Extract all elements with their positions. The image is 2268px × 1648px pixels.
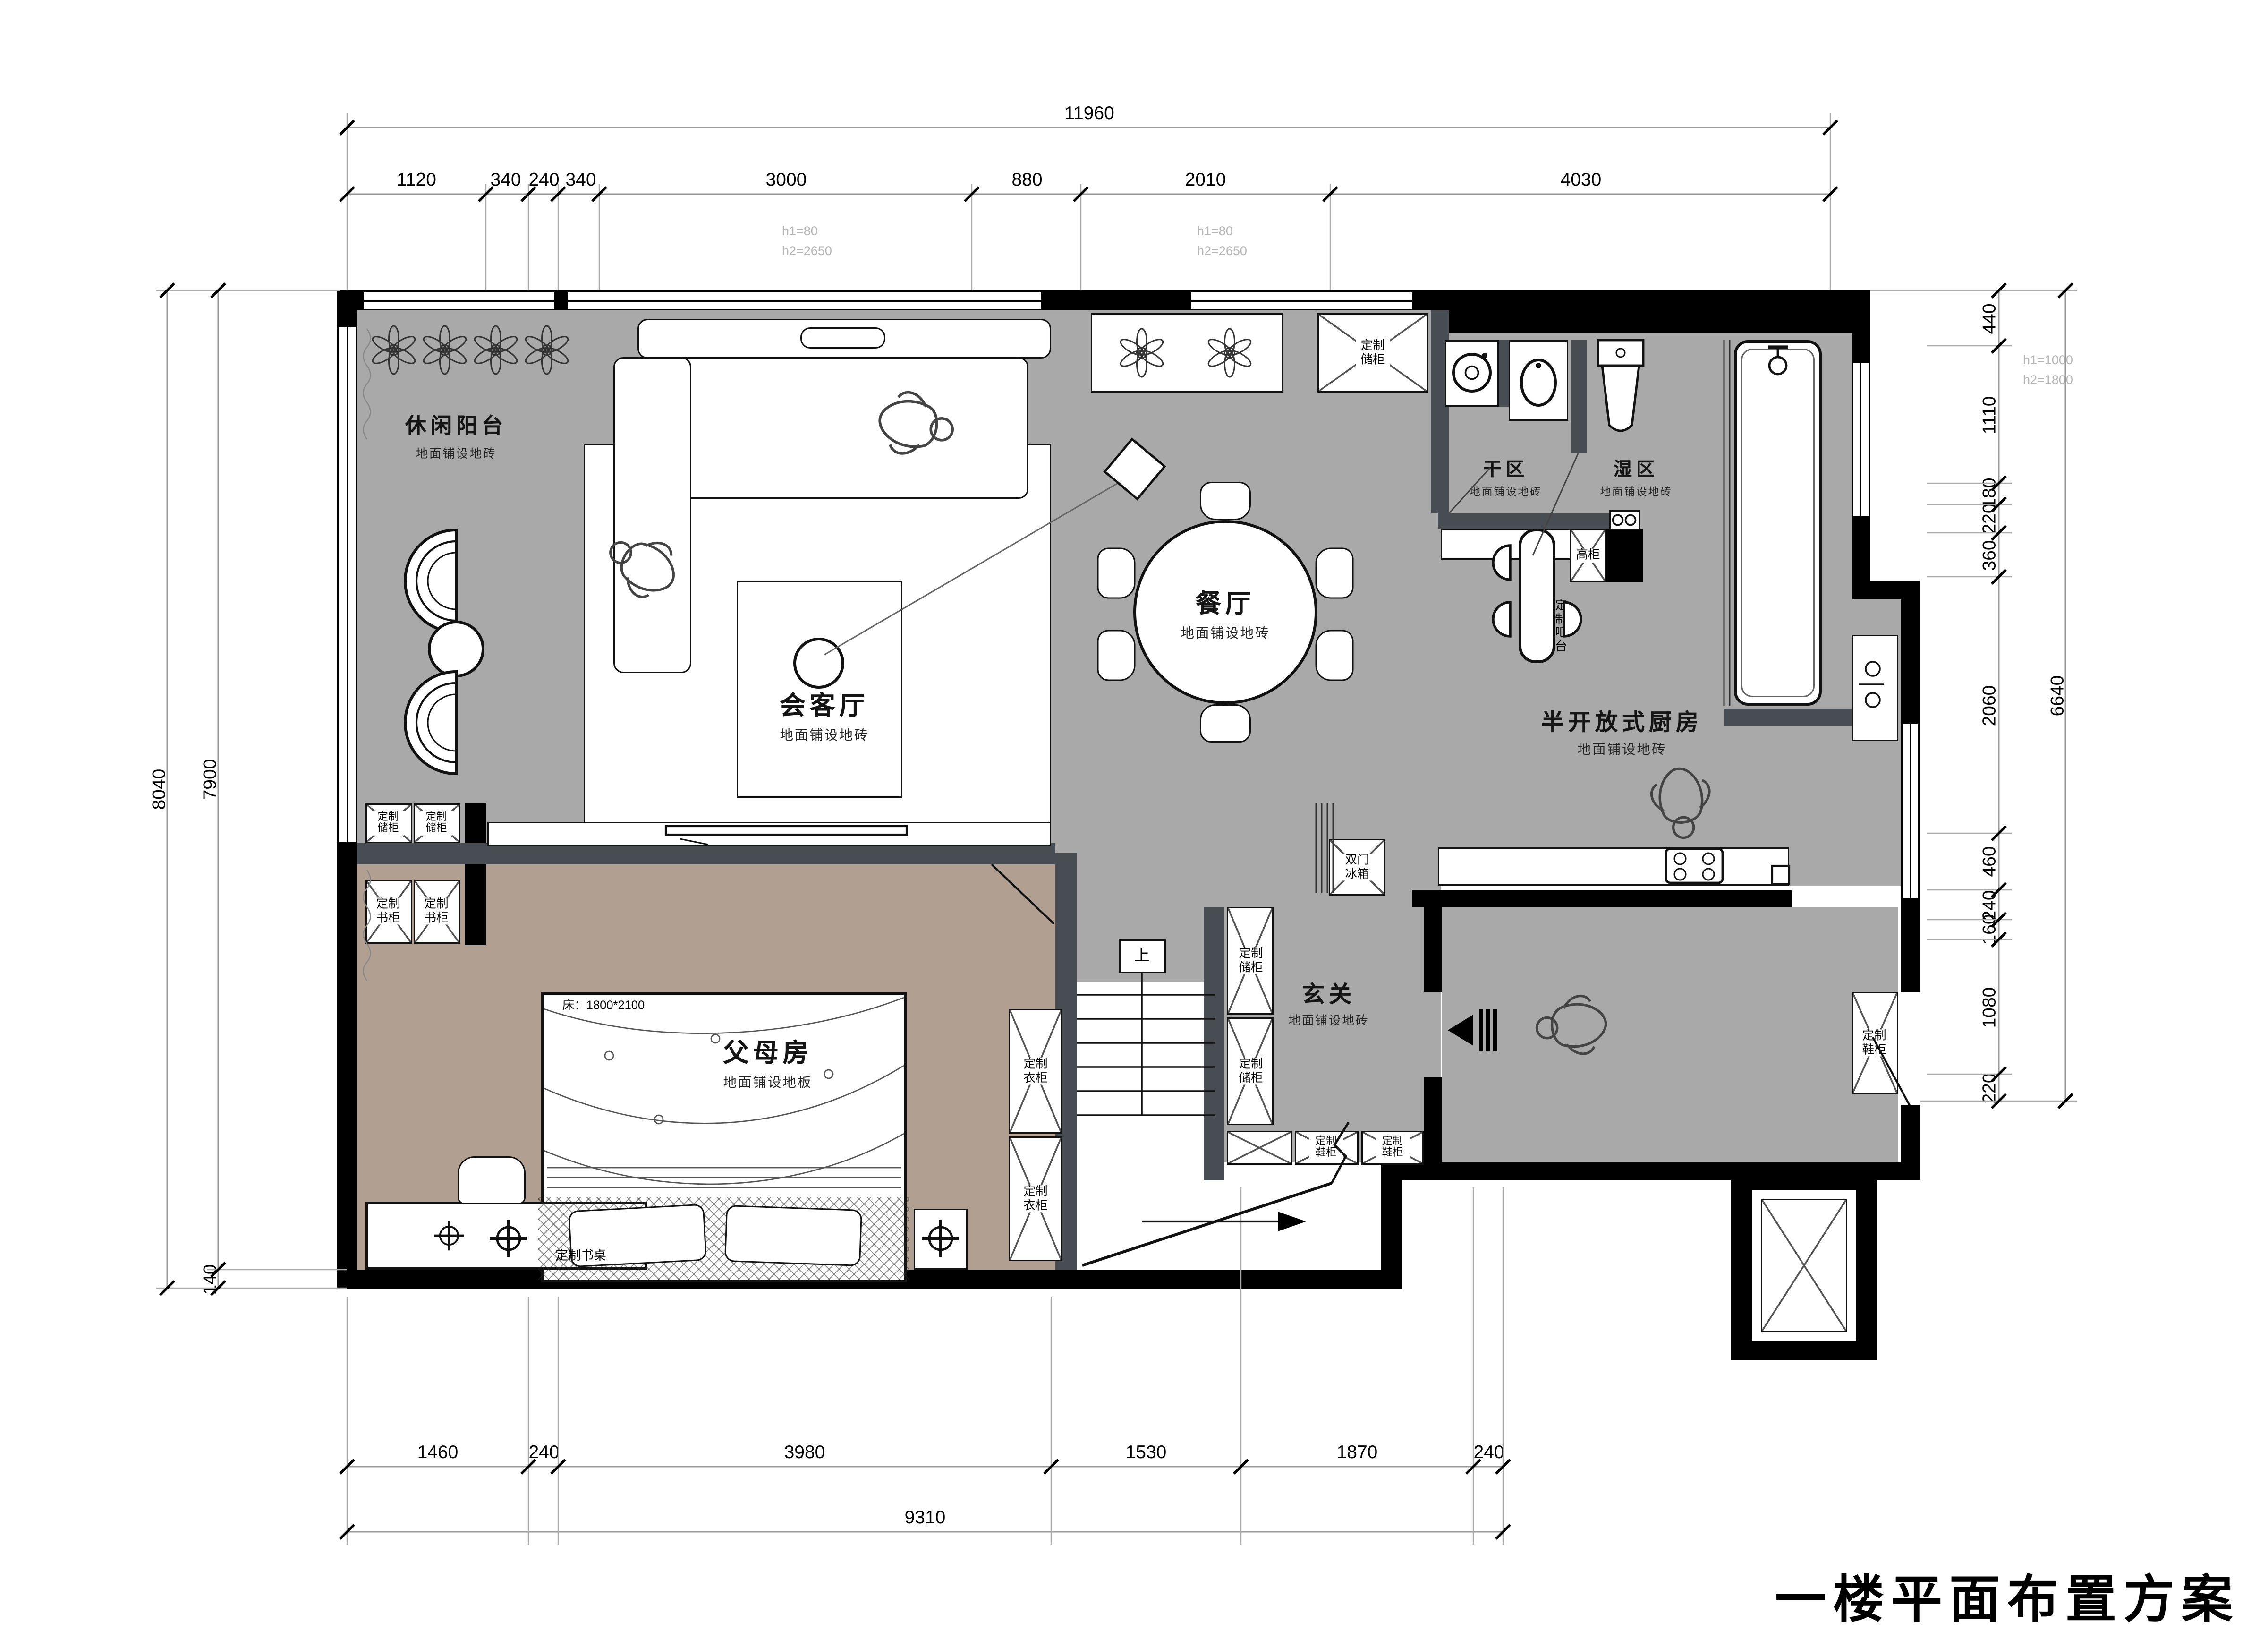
toilet bbox=[1598, 340, 1643, 431]
entry-arrow bbox=[1448, 1009, 1497, 1051]
tv bbox=[666, 826, 907, 845]
person-on-chaise bbox=[597, 522, 686, 607]
lounge-chair-1 bbox=[405, 530, 456, 632]
lounge-chair-2 bbox=[405, 672, 456, 774]
balcony-plants bbox=[371, 326, 1253, 377]
page-title: 一楼平面布置方案 bbox=[1775, 1559, 2240, 1632]
vase bbox=[795, 639, 843, 687]
wall-plant-diamond bbox=[1105, 439, 1165, 499]
curtain-balcony bbox=[364, 329, 371, 439]
stair-break-arrow bbox=[1082, 1122, 1349, 1265]
nightstand-lamp-left bbox=[490, 1220, 527, 1257]
person-at-entry bbox=[1534, 994, 1608, 1058]
wet-door-swing bbox=[1533, 453, 1578, 555]
slat-screen bbox=[1316, 803, 1333, 893]
person-in-kitchen bbox=[1649, 766, 1713, 840]
curtain-bedroom bbox=[364, 870, 371, 981]
kitchen-small-box bbox=[1772, 866, 1789, 884]
desk-lamp bbox=[434, 1221, 464, 1250]
bar-chairs bbox=[1493, 546, 1581, 636]
person-on-sofa bbox=[875, 388, 958, 461]
bathtub-faucet bbox=[1768, 347, 1788, 374]
bed-quilt-lines bbox=[544, 998, 904, 1187]
dry-door-swing bbox=[1449, 468, 1490, 513]
washing-machine-drum bbox=[1453, 353, 1490, 391]
floor-plan-sheet: 定制储柜 高柜 双门冰箱 定制吧台 定制储柜 定制储柜 定制鞋柜 定制鞋柜 定制… bbox=[0, 0, 2268, 1648]
flower-stem-line bbox=[824, 473, 1135, 655]
stair-treads bbox=[1077, 973, 1215, 1115]
stove bbox=[1666, 849, 1723, 883]
linework-overlay bbox=[0, 0, 2268, 1648]
entry-door-leaf bbox=[1873, 1037, 1910, 1105]
dimension-lines bbox=[167, 128, 2065, 1532]
bedroom-door-leaf bbox=[992, 864, 1054, 924]
dimension-ticks bbox=[160, 120, 2073, 1539]
bath-sink bbox=[1521, 360, 1555, 405]
extension-lines bbox=[156, 113, 2077, 1545]
kitchen-appliance-circles bbox=[1613, 515, 1885, 708]
balcony-side-table bbox=[429, 622, 483, 676]
nightstand-lamp-right bbox=[922, 1220, 959, 1257]
